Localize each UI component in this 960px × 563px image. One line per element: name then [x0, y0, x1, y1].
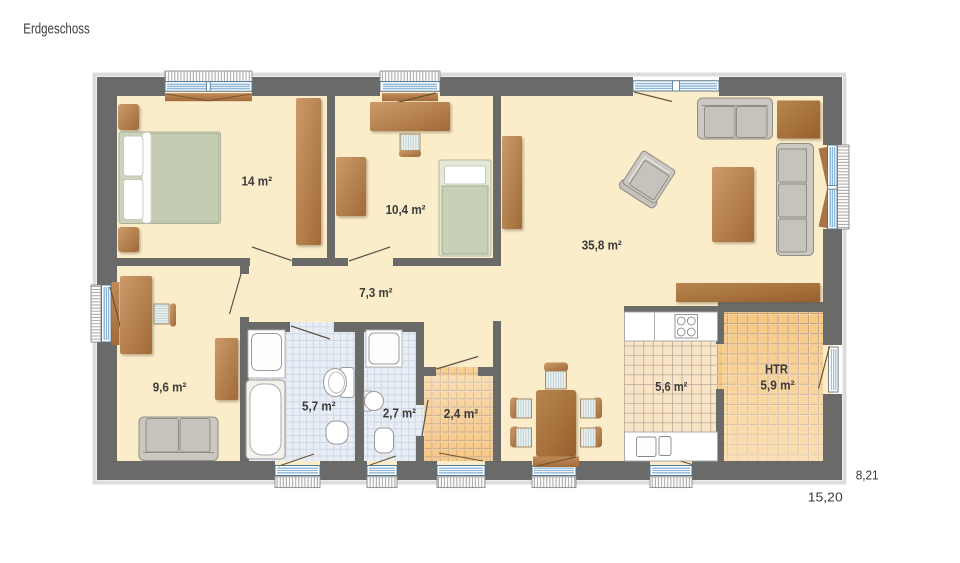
svg-text:Erdgeschoss: Erdgeschoss: [23, 20, 89, 37]
svg-text:2,7 m²: 2,7 m²: [383, 405, 416, 420]
svg-text:2,4 m²: 2,4 m²: [444, 406, 479, 421]
svg-text:7,3 m²: 7,3 m²: [359, 285, 392, 300]
svg-text:9,6 m²: 9,6 m²: [153, 380, 187, 395]
svg-text:5,9 m²: 5,9 m²: [760, 378, 794, 393]
svg-text:HTR: HTR: [765, 362, 788, 377]
svg-text:14 m²: 14 m²: [242, 173, 273, 188]
svg-text:8,21: 8,21: [856, 468, 879, 482]
svg-text:5,6 m²: 5,6 m²: [655, 379, 687, 394]
svg-text:35,8 m²: 35,8 m²: [582, 237, 622, 252]
svg-text:10,4 m²: 10,4 m²: [386, 202, 426, 217]
svg-text:5,7 m²: 5,7 m²: [302, 398, 336, 413]
svg-text:15,20: 15,20: [808, 491, 843, 505]
